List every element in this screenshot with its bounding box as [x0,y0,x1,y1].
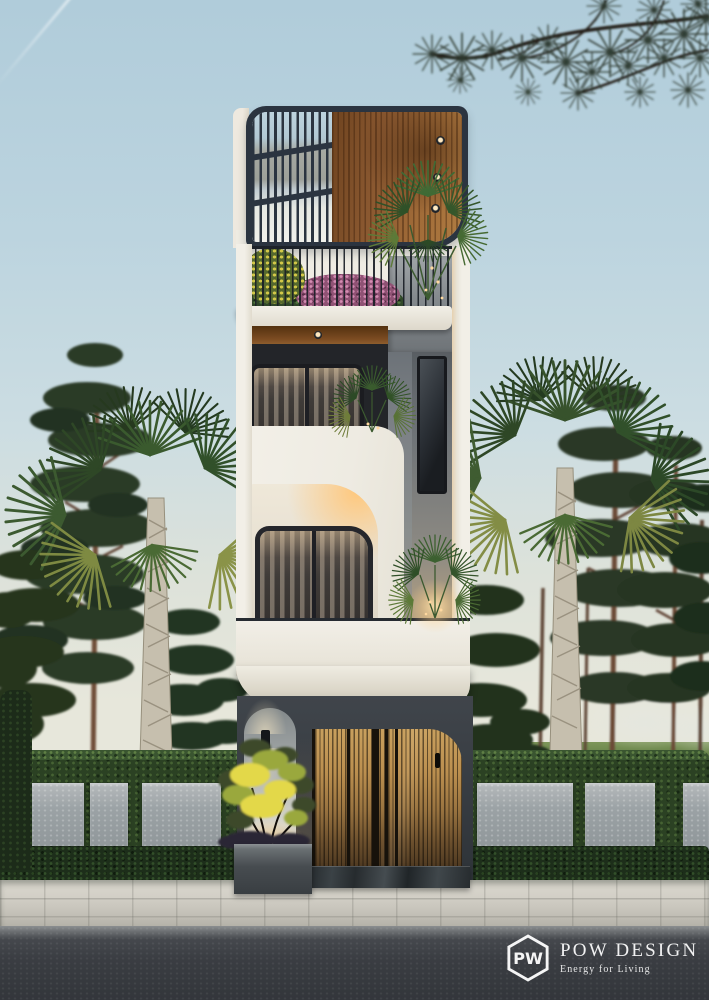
foreground-plants [0,0,709,1000]
concrete-planter-box [234,844,312,894]
architectural-render: PW POW DESIGN Energy for Living [0,0,709,1000]
brand-tagline: Energy for Living [560,964,698,975]
roof-terrace-plant [362,161,493,300]
floor2-niche-plant [383,535,487,633]
watermark: PW POW DESIGN Energy for Living [506,934,698,982]
brand-name: POW DESIGN [560,941,698,962]
floor3-plant [325,366,419,440]
logo-monogram: PW [513,949,543,968]
watermark-text: POW DESIGN Energy for Living [560,941,698,975]
pow-design-logo-icon: PW [506,934,550,982]
entry-stone-step [306,866,470,888]
